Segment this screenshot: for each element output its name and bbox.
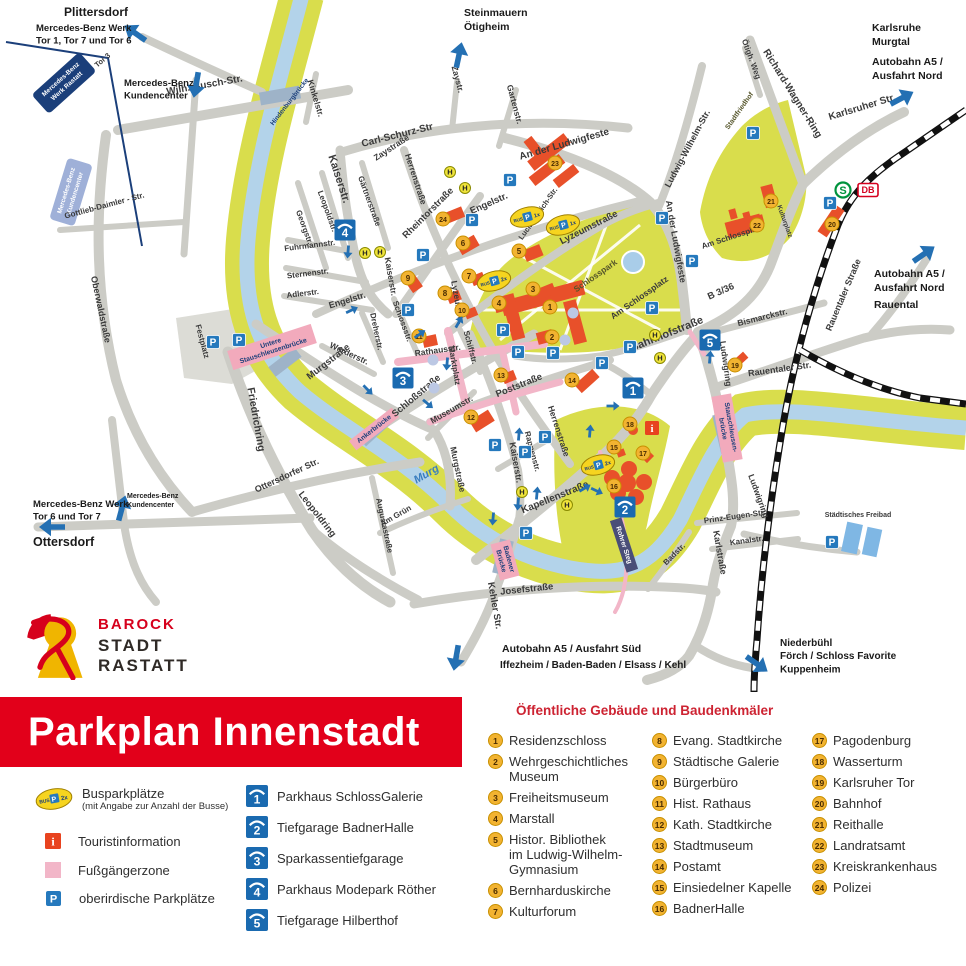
bus-stop-marker: H [445, 167, 456, 178]
edge-label: Steinmauern [464, 7, 528, 19]
svg-text:P: P [515, 348, 522, 359]
city-map: Mercedes-BenzWerk RastattMercedes-BenzKu… [0, 0, 966, 697]
building-marker-4: 4 [492, 296, 506, 310]
building-label: Kath. Stadtkirche [673, 817, 772, 832]
svg-text:P: P [500, 326, 507, 337]
svg-text:3: 3 [531, 285, 536, 294]
mercedes-box: Mercedes-BenzWerk Rastatt [32, 52, 97, 114]
building-marker-9: 9 [401, 271, 415, 285]
page-title: Parkplan Innenstadt [0, 697, 462, 767]
building-number-badge: 14 [652, 859, 667, 874]
rastatt-emblem-icon [25, 612, 89, 680]
building-label: Evang. Stadtkirche [673, 733, 782, 748]
svg-text:3: 3 [254, 854, 261, 868]
svg-text:21: 21 [767, 199, 775, 206]
garage-label: Sparkassentiefgarage [277, 851, 403, 866]
svg-text:P: P [420, 251, 427, 262]
mercedes-boxes: Mercedes-BenzWerk RastattMercedes-BenzKu… [32, 52, 97, 226]
legend-pedestrian-row: Fußgängerzone [45, 862, 170, 878]
building-number-badge: 9 [652, 754, 667, 769]
svg-text:2: 2 [550, 333, 555, 342]
svg-text:18: 18 [626, 422, 634, 429]
bus-stop-marker: H [375, 247, 386, 258]
svg-text:2: 2 [622, 505, 628, 517]
legend-tourist-label: Touristinformation [78, 834, 181, 849]
building-marker-3: 3 [526, 282, 540, 296]
building-list-item: 6Bernharduskirche [488, 883, 648, 898]
parking-marker: P [747, 127, 760, 140]
svg-text:8: 8 [443, 289, 448, 298]
svg-text:P: P [599, 359, 606, 370]
edge-label: Ottersdorf [33, 535, 95, 549]
building-list-item: 22Landratsamt [812, 838, 966, 853]
parking-marker: P [207, 336, 220, 349]
building-list-item: 17Pagodenburg [812, 733, 966, 748]
bus-stop-marker: H [562, 500, 573, 511]
building-list-item: 14Postamt [652, 859, 812, 874]
svg-text:3: 3 [400, 376, 406, 388]
svg-text:H: H [652, 331, 657, 340]
parkhaus-badge-icon: 1 [246, 785, 268, 807]
parking-marker: P [417, 249, 430, 262]
edge-label: Murgtal [872, 36, 910, 48]
tourist-info-icon: i [45, 833, 61, 849]
parking-marker: P [824, 197, 837, 210]
svg-text:S: S [839, 185, 846, 197]
edge-label: Plittersdorf [64, 5, 129, 19]
svg-text:H: H [377, 248, 382, 257]
svg-text:DB: DB [862, 185, 875, 195]
svg-text:17: 17 [639, 451, 647, 458]
building-list-item: 12Kath. Stadtkirche [652, 817, 812, 832]
building-list-item: 18Wasserturm [812, 754, 966, 769]
parkhaus-badge-4: 4 [335, 220, 356, 241]
buildings-heading: Öffentliche Gebäude und Baudenkmäler [516, 703, 773, 718]
parkhaus-badge-icon: 2 [246, 816, 268, 838]
svg-text:16: 16 [610, 484, 618, 491]
building-number-badge: 5 [488, 832, 503, 847]
svg-text:P: P [627, 343, 634, 354]
svg-text:P: P [492, 441, 499, 452]
building-marker-2: 2 [545, 330, 559, 344]
svg-text:P: P [236, 336, 243, 347]
svg-text:i: i [650, 423, 653, 435]
svg-text:5: 5 [254, 916, 261, 930]
parking-marker: P [547, 347, 560, 360]
building-number-badge: 22 [812, 838, 827, 853]
garage-list-item: 4Parkhaus Modepark Röther [246, 878, 436, 900]
building-list-item: 20Bahnhof [812, 796, 966, 811]
building-label: Wasserturm [833, 754, 903, 769]
building-marker-13: 13 [494, 368, 508, 382]
street-label: Zaystr. [450, 65, 467, 94]
svg-text:22: 22 [753, 223, 761, 230]
bus-stop-marker: H [517, 487, 528, 498]
street-label: Herrenstraße [403, 152, 429, 206]
svg-text:H: H [657, 354, 662, 363]
svg-text:P: P [750, 129, 757, 140]
svg-text:H: H [447, 168, 452, 177]
sbahn-icon: S [836, 183, 851, 198]
parkhaus-badge-5: 5 [700, 330, 721, 351]
svg-text:P: P [469, 216, 476, 227]
building-number-badge: 13 [652, 838, 667, 853]
parkhaus-badge-icon: 5 [246, 909, 268, 931]
building-label: Hist. Rathaus [673, 796, 751, 811]
parking-marker: P [656, 212, 669, 225]
svg-text:H: H [519, 488, 524, 497]
building-label: Bürgerbüro [673, 775, 738, 790]
edge-label: Ausfahrt Nord [872, 70, 943, 82]
building-list-item: 8Evang. Stadtkirche [652, 733, 812, 748]
edge-label: Förch / Schloss Favorite [780, 651, 897, 662]
svg-text:9: 9 [406, 274, 411, 283]
building-marker-22: 22 [750, 218, 764, 232]
edge-label: Mercedes-Benz Werk [33, 499, 129, 510]
building-list-item: 10Bürgerbüro [652, 775, 812, 790]
bus-stop-marker: H [655, 353, 666, 364]
svg-text:P: P [405, 306, 412, 317]
building-label: Pagodenburg [833, 733, 911, 748]
building-marker-12: 12 [464, 410, 478, 424]
street-label: Kaiserstr. [383, 257, 400, 297]
svg-text:P: P [827, 199, 834, 210]
db-logo-icon: DB [858, 184, 878, 197]
buildings-column-2: 8Evang. Stadtkirche9Städtische Galerie10… [652, 733, 812, 922]
parking-marker: P [520, 527, 533, 540]
edge-label: Iffezheim / Baden-Baden / Elsass / Kehl [500, 660, 686, 671]
garage-label: Parkhaus Modepark Röther [277, 882, 436, 897]
building-list-item: 4Marstall [488, 811, 648, 826]
edge-label: Autobahn A5 / [872, 56, 943, 68]
legend-bus-row: BUS P 2x Busparkplätze (mit Angabe zur A… [34, 786, 228, 812]
building-marker-21: 21 [764, 194, 778, 208]
building-number-badge: 7 [488, 904, 503, 919]
building-marker-18: 18 [623, 417, 637, 431]
buildings-column-1: 1Residenzschloss2Wehrgeschichtliches Mus… [488, 733, 648, 925]
building-list-item: 13Stadtmuseum [652, 838, 812, 853]
svg-text:P: P [522, 448, 529, 459]
building-label: Karlsruher Tor [833, 775, 914, 790]
edge-label: Kundencenter [127, 502, 174, 509]
svg-text:10: 10 [458, 308, 466, 315]
svg-text:4: 4 [497, 299, 502, 308]
logo-line-barock: BAROCK [98, 616, 176, 633]
building-marker-10: 10 [455, 303, 469, 317]
parking-marker: P [512, 346, 525, 359]
edge-label: Mercedes-Benz Werk [36, 23, 132, 34]
street-label: Oberwaldstraße [89, 275, 113, 344]
building-list-item: 7Kulturforum [488, 904, 648, 919]
building-label: Wehrgeschichtliches Museum [509, 754, 628, 784]
svg-text:7: 7 [467, 272, 472, 281]
bus-parking-icon: BUS P 2x [34, 786, 74, 812]
parkhaus-badge-1: 1 [623, 378, 644, 399]
building-label: Kulturforum [509, 904, 576, 919]
building-marker-1: 1 [543, 300, 557, 314]
street-label: Rauentaler Straße [824, 257, 863, 332]
svg-text:1: 1 [254, 792, 261, 806]
svg-text:P: P [523, 529, 530, 540]
street-label: Josefstraße [500, 581, 554, 598]
garage-label: Tiefgarage Hilberthof [277, 913, 398, 928]
legend-tourist-row: i Touristinformation [45, 833, 181, 849]
legend-parking-row: P oberirdische Parkplätze [46, 891, 215, 906]
edge-label: Autobahn A5 / Ausfahrt Süd [502, 643, 641, 655]
parking-marker: P [497, 324, 510, 337]
building-list-item: 2Wehrgeschichtliches Museum [488, 754, 648, 784]
edge-label: Mercedes-Benz [127, 493, 179, 500]
svg-text:H: H [462, 184, 467, 193]
svg-text:P: P [659, 214, 666, 225]
legend-parking-label: oberirdische Parkplätze [79, 891, 215, 906]
building-number-badge: 20 [812, 796, 827, 811]
street-label: B 3/36 [706, 281, 736, 302]
building-label: Reithalle [833, 817, 884, 832]
svg-text:19: 19 [731, 363, 739, 370]
svg-text:P: P [649, 304, 656, 315]
legend-bus-sublabel: (mit Angabe zur Anzahl der Busse) [82, 801, 228, 812]
parkhaus-badge-icon: 4 [246, 878, 268, 900]
building-number-badge: 17 [812, 733, 827, 748]
building-number-badge: 1 [488, 733, 503, 748]
building-marker-15: 15 [607, 440, 621, 454]
svg-text:P: P [542, 433, 549, 444]
parking-marker: P [489, 439, 502, 452]
building-marker-17: 17 [636, 446, 650, 460]
freibad-buildings [841, 522, 882, 558]
building-marker-5: 5 [512, 244, 526, 258]
building-label: Bahnhof [833, 796, 881, 811]
building-number-badge: 18 [812, 754, 827, 769]
parking-marker: P [519, 446, 532, 459]
building-list-item: 21Reithalle [812, 817, 966, 832]
legend-pedestrian-label: Fußgängerzone [78, 863, 170, 878]
buildings-column-3: 17Pagodenburg18Wasserturm19Karlsruher To… [812, 733, 966, 901]
building-list-item: 23Kreiskrankenhaus [812, 859, 966, 874]
svg-text:6: 6 [461, 239, 466, 248]
building-label: Stadtmuseum [673, 838, 753, 853]
city-logo: BAROCK STADT RASTATT [25, 608, 305, 688]
building-number-badge: 3 [488, 790, 503, 805]
building-list-item: 11Hist. Rathaus [652, 796, 812, 811]
tourist-info-markers: i [645, 421, 659, 435]
svg-text:5: 5 [517, 247, 522, 256]
parking-marker: P [624, 341, 637, 354]
parking-marker: P [646, 302, 659, 315]
svg-text:14: 14 [568, 378, 576, 385]
building-label: Histor. Bibliothek im Ludwig-Wilhelm- Gy… [509, 832, 622, 877]
edge-label: Autobahn A5 / [874, 268, 945, 280]
edge-label: Tor 1, Tor 7 und Tor 6 [36, 36, 132, 47]
building-list-item: 9Städtische Galerie [652, 754, 812, 769]
building-label: Kreiskrankenhaus [833, 859, 937, 874]
building-number-badge: 24 [812, 880, 827, 895]
parking-marker: P [504, 174, 517, 187]
building-number-badge: 4 [488, 811, 503, 826]
building-number-badge: 2 [488, 754, 503, 769]
edge-label: Kundencenter [124, 91, 188, 102]
svg-text:P: P [50, 894, 57, 906]
svg-text:1: 1 [548, 303, 553, 312]
parkhaus-badge-2: 2 [615, 497, 636, 518]
building-marker-19: 19 [728, 358, 742, 372]
building-number-badge: 11 [652, 796, 667, 811]
building-number-badge: 21 [812, 817, 827, 832]
building-number-badge: 12 [652, 817, 667, 832]
edge-label: Rauental [874, 299, 918, 311]
garage-list-item: 5Tiefgarage Hilberthof [246, 909, 436, 931]
parking-marker: P [539, 431, 552, 444]
garage-list-item: 1Parkhaus SchlossGalerie [246, 785, 436, 807]
svg-text:P: P [829, 538, 836, 549]
bus-stop-marker: H [460, 183, 471, 194]
street-label: Städtisches Freibad [825, 512, 892, 519]
parking-marker: P [466, 214, 479, 227]
svg-text:H: H [564, 501, 569, 510]
svg-text:P: P [550, 349, 557, 360]
building-label: Freiheitsmuseum [509, 790, 609, 805]
edge-label: Ausfahrt Nord [874, 282, 945, 294]
building-marker-7: 7 [462, 269, 476, 283]
building-list-item: 5Histor. Bibliothek im Ludwig-Wilhelm- G… [488, 832, 648, 877]
svg-text:12: 12 [467, 415, 475, 422]
building-marker-20: 20 [825, 217, 839, 231]
edge-label: Ötigheim [464, 20, 510, 33]
parkhaus-badge-3: 3 [393, 368, 414, 389]
parking-marker: P [402, 304, 415, 317]
svg-text:P: P [689, 257, 696, 268]
parkhaus-badge-icon: 3 [246, 847, 268, 869]
building-label: Städtische Galerie [673, 754, 779, 769]
parking-marker: P [826, 536, 839, 549]
garage-label: Tiefgarage BadnerHalle [277, 820, 414, 835]
parking-marker: P [596, 357, 609, 370]
legend-bus-label: Busparkplätze [82, 786, 228, 801]
svg-text:2: 2 [254, 823, 261, 837]
svg-text:P: P [507, 176, 514, 187]
building-list-item: 16BadnerHalle [652, 901, 812, 916]
building-number-badge: 15 [652, 880, 667, 895]
parking-icon: P [46, 891, 61, 906]
building-list-item: 24Polizei [812, 880, 966, 895]
building-label: Residenzschloss [509, 733, 607, 748]
parkplan-page: { "banner":{"title":"Parkplan Innenstadt… [0, 0, 966, 966]
building-marker-8: 8 [438, 286, 452, 300]
parking-marker: P [686, 255, 699, 268]
svg-text:4: 4 [342, 228, 349, 240]
edge-label: Tor 6 und Tor 7 [33, 512, 101, 523]
edge-label: Mercedes-Benz [124, 78, 194, 89]
building-number-badge: 16 [652, 901, 667, 916]
svg-text:23: 23 [551, 161, 559, 168]
building-marker-6: 6 [456, 236, 470, 250]
tourist-info-marker: i [645, 421, 659, 435]
logo-line-stadt: STADT [98, 636, 163, 656]
building-marker-23: 23 [548, 156, 562, 170]
building-label: BadnerHalle [673, 901, 745, 916]
svg-text:P: P [210, 338, 217, 349]
bus-stop-marker: H [360, 248, 371, 259]
svg-text:13: 13 [497, 373, 505, 380]
building-number-badge: 8 [652, 733, 667, 748]
building-number-badge: 10 [652, 775, 667, 790]
garage-label: Parkhaus SchlossGalerie [277, 789, 423, 804]
svg-text:24: 24 [439, 217, 447, 224]
building-number-badge: 23 [812, 859, 827, 874]
destination-arrow-icon [447, 40, 470, 69]
bus-stop-marker: H [650, 330, 661, 341]
building-label: Polizei [833, 880, 871, 895]
building-list-item: 1Residenzschloss [488, 733, 648, 748]
title-banner: Parkplan Innenstadt [0, 697, 462, 767]
edge-label: Karlsruhe [872, 22, 921, 34]
building-label: Marstall [509, 811, 555, 826]
building-marker-16: 16 [607, 479, 621, 493]
building-label: Einsiedelner Kapelle [673, 880, 792, 895]
building-list-item: 3Freiheitsmuseum [488, 790, 648, 805]
garage-list-item: 2Tiefgarage BadnerHalle [246, 816, 436, 838]
building-label: Landratsamt [833, 838, 905, 853]
building-marker-24: 24 [436, 212, 450, 226]
street-label: Engelstr. [468, 191, 509, 217]
edge-label: Niederbühl [780, 638, 832, 649]
svg-text:H: H [362, 249, 367, 258]
svg-text:20: 20 [828, 222, 836, 229]
building-marker-14: 14 [565, 373, 579, 387]
parking-marker: P [233, 334, 246, 347]
building-label: Bernharduskirche [509, 883, 611, 898]
garage-list: 1Parkhaus SchlossGalerie2Tiefgarage Badn… [246, 785, 436, 940]
garage-list-item: 3Sparkassentiefgarage [246, 847, 436, 869]
building-number-badge: 19 [812, 775, 827, 790]
edge-label: Kuppenheim [780, 664, 841, 675]
building-list-item: 19Karlsruher Tor [812, 775, 966, 790]
svg-text:4: 4 [254, 885, 261, 899]
flow-arrow-icon [514, 427, 524, 441]
building-number-badge: 6 [488, 883, 503, 898]
svg-text:15: 15 [610, 445, 618, 452]
building-label: Postamt [673, 859, 721, 874]
pedestrian-zone-icon [45, 862, 61, 878]
svg-text:5: 5 [707, 338, 714, 350]
logo-line-rastatt: RASTATT [98, 656, 189, 676]
svg-text:1: 1 [630, 386, 637, 398]
building-list-item: 15Einsiedelner Kapelle [652, 880, 812, 895]
